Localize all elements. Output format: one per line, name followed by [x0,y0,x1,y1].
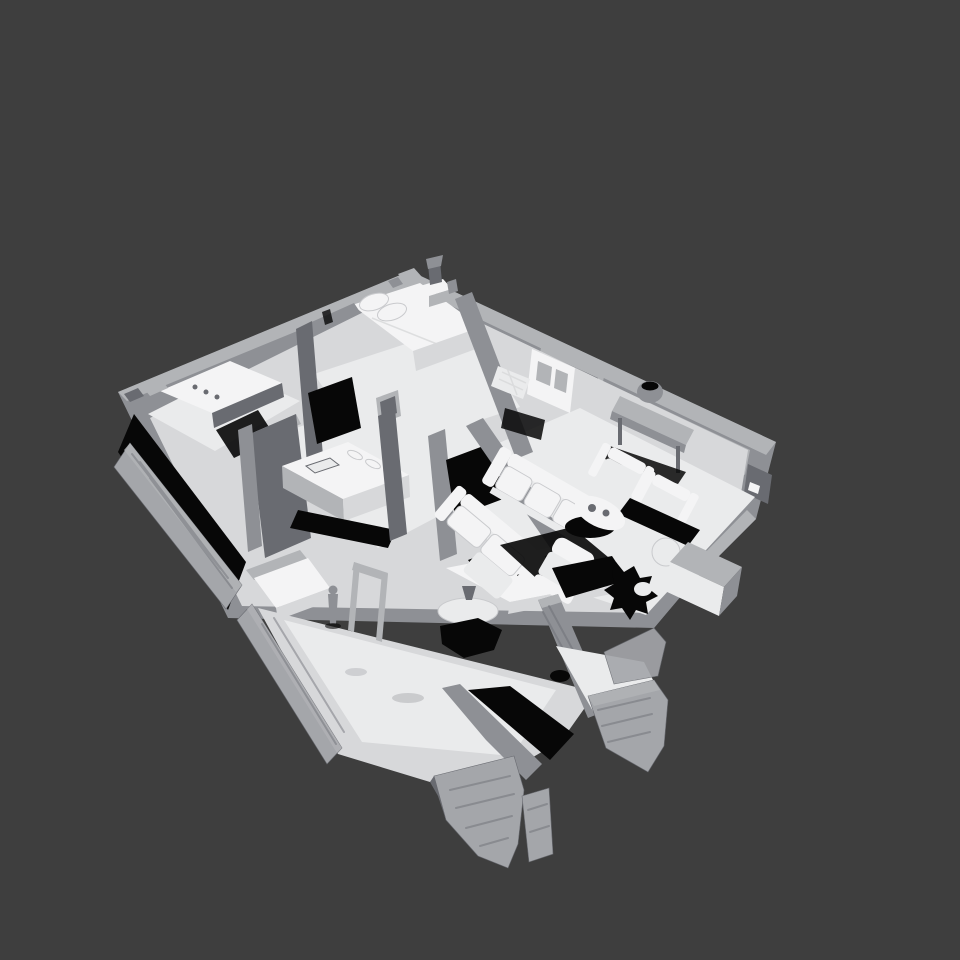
console-leg [618,418,622,445]
faucet-fixture [204,390,209,395]
faucet-fixture [215,395,220,400]
plant-pot [634,582,652,596]
pedestal-table [438,598,498,624]
faucet-fixture [193,385,198,390]
table-item [588,504,596,512]
nook-floor-hole [550,670,570,682]
mesh-render [0,0,960,960]
toilet [175,410,205,430]
ceramic-pot-opening [642,382,659,391]
viewport-3d[interactable] [0,0,960,960]
standing-figure-head [329,586,338,595]
floor-scuff [392,693,424,703]
figure-shadow [325,623,341,629]
table-item [603,510,610,517]
floor-scuff [345,668,367,676]
